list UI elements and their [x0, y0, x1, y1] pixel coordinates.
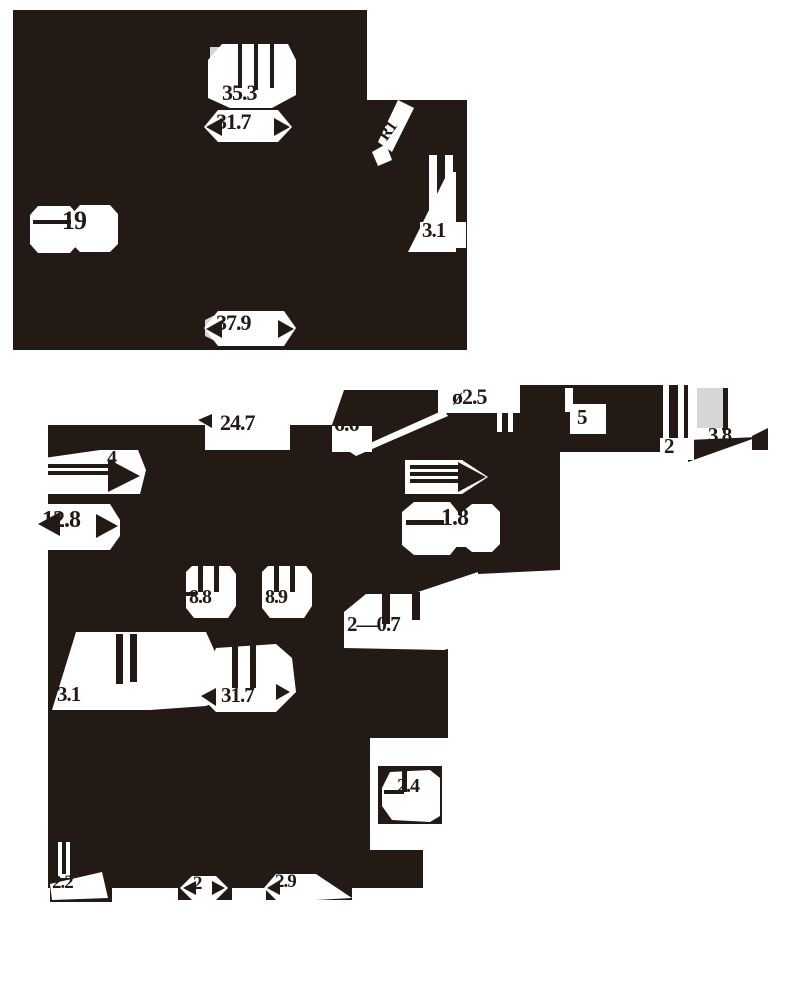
dim-dia-2-5: ø2.5 [452, 386, 487, 408]
dim-8-8: 8.8 [189, 587, 211, 607]
dim-35-3: 35.3 [222, 82, 257, 104]
dim-2-2: 2.2 [52, 873, 73, 892]
dim-31-7-front: 31.7 [221, 685, 254, 706]
dim-2x0-7: 2—0.7 [347, 614, 400, 635]
dim-37-9: 37.9 [216, 312, 251, 334]
edge-wedge-icon [752, 428, 768, 450]
dim-2-9: 2.9 [275, 872, 296, 891]
dim-3-1-front: 3.1 [57, 684, 80, 705]
gray-mask-icon [697, 388, 723, 428]
dim-8-9: 8.9 [265, 587, 287, 607]
dim-3-8: 3.8 [708, 425, 731, 446]
dim-2-4: 2.4 [397, 776, 419, 796]
dim-6-6: 6.6 [334, 413, 359, 435]
dim-12-8: 12.8 [42, 508, 80, 532]
dim-5: 5 [577, 407, 587, 428]
dim-1-8: 1.8 [441, 506, 468, 530]
callout-4-arrow [44, 450, 146, 494]
dim-3-1-top: 3.1 [422, 220, 445, 241]
drawing-canvas: 35.3 31.7 R1 19 3.1 37.9 24.7 6.6 ø2.5 5… [0, 0, 800, 982]
dim-2-top: 2 [664, 436, 674, 457]
drawing-shapes [0, 0, 800, 982]
dim-2-bottom: 2 [193, 874, 202, 893]
dim-31-7: 31.7 [216, 111, 251, 133]
dim-4: 4 [107, 448, 116, 468]
dim-24-7: 24.7 [220, 412, 255, 434]
dim-19: 19 [62, 208, 86, 234]
